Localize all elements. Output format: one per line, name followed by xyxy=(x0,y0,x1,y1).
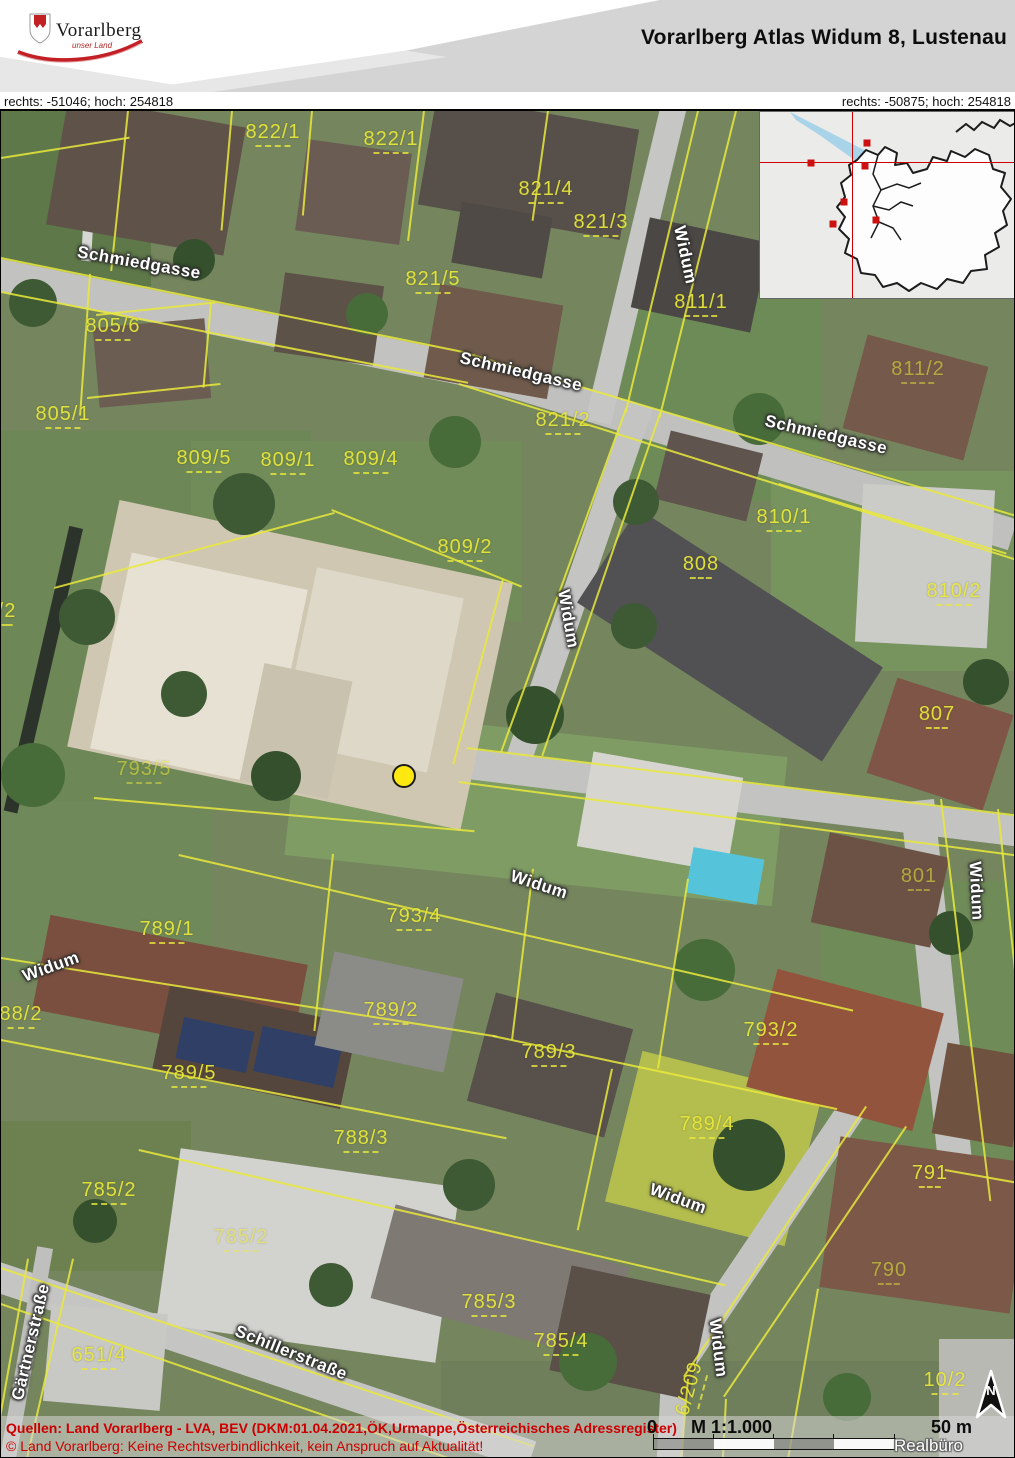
logo-tagline: unser Land xyxy=(72,41,112,50)
town-location-square xyxy=(830,221,837,228)
north-arrow-icon: N xyxy=(971,1369,1011,1421)
source-line: Quellen: Land Vorarlberg - LVA, BEV (DKM… xyxy=(6,1420,677,1436)
disclaimer-line: © Land Vorarlberg: Keine Rechtsverbindli… xyxy=(6,1438,483,1454)
parcel-number-label: 805/6 xyxy=(85,315,140,341)
parcel-number-label: 821/2 xyxy=(535,409,590,435)
parcel-number-label: 822/1 xyxy=(363,128,418,154)
vorarlberg-logo: Vorarlberg unser Land xyxy=(10,8,200,78)
parcel-number-label: 808 xyxy=(683,553,719,579)
town-location-square xyxy=(808,160,815,167)
vorarlberg-shield-icon xyxy=(30,14,50,43)
parcel-number-label: 785/3 xyxy=(461,1291,516,1317)
lake-constance-shape xyxy=(790,112,872,161)
parcel-number-label: 805/1 xyxy=(35,403,90,429)
parcel-number-label: 651/4 xyxy=(71,1344,126,1370)
tree xyxy=(429,416,481,468)
address-marker xyxy=(392,764,416,788)
tree xyxy=(963,659,1009,705)
parcel-number-label: 809/1 xyxy=(260,449,315,475)
tree xyxy=(73,1199,117,1243)
building xyxy=(295,139,412,245)
parcel-number-label: 793/2 xyxy=(743,1019,798,1045)
overview-inset-map[interactable] xyxy=(759,111,1015,299)
parcel-number-label: 811/1 xyxy=(674,291,728,317)
page-title: Vorarlberg Atlas Widum 8, Lustenau xyxy=(641,26,1007,50)
parcel-number-label: 789/3 xyxy=(521,1041,576,1067)
parcel-number-label: 793/5 xyxy=(116,758,171,784)
tree xyxy=(309,1263,353,1307)
scale-bar xyxy=(653,1438,896,1450)
building xyxy=(855,484,995,649)
parcel-number-label: 789/2 xyxy=(363,999,418,1025)
street-name-label: Widum xyxy=(964,861,987,921)
scale-tick xyxy=(713,1434,714,1439)
scale-tick xyxy=(653,1434,654,1439)
parcel-number-label: 821/3 xyxy=(573,211,628,237)
parcel-number-label: 88/2 xyxy=(0,1003,42,1029)
parcel-number-label: 785/2 xyxy=(81,1179,136,1205)
parcel-number-label: 807 xyxy=(919,703,955,729)
scale-tick xyxy=(833,1434,834,1439)
parcel-number-label: 809/4 xyxy=(343,448,398,474)
parcel-number-label: 793/4 xyxy=(386,905,441,931)
vorarlberg-outline-graphic xyxy=(760,112,1015,299)
parcel-number-label: 785/4 xyxy=(533,1330,588,1356)
tree xyxy=(611,603,657,649)
tree xyxy=(443,1159,495,1211)
town-location-square xyxy=(864,140,871,147)
parcel-number-label: 809/2 xyxy=(437,536,492,562)
parcel-number-label: 789/1 xyxy=(139,918,194,944)
tree xyxy=(59,589,115,645)
parcel-number-label: 791 xyxy=(912,1162,948,1188)
parcel-number-label: 789/4 xyxy=(679,1113,734,1139)
parcel-number-label: 788/3 xyxy=(333,1127,388,1153)
parcel-number-label: 821/4 xyxy=(518,178,573,204)
header: Vorarlberg unser Land Vorarlberg Atlas W… xyxy=(0,0,1015,92)
credit-label: Realbüro Hagen xyxy=(894,1436,1014,1458)
scale-tick xyxy=(773,1434,774,1439)
map-viewport[interactable]: 822/1822/1821/4821/3821/5811/1805/6805/1… xyxy=(0,110,1015,1458)
parcel-number-label: 790 xyxy=(871,1259,907,1285)
parcel-number-label: 822/1 xyxy=(245,121,300,147)
tree xyxy=(213,473,275,535)
svg-text:N: N xyxy=(986,1383,995,1398)
scale-ratio-label: M 1:1.000 xyxy=(691,1417,772,1438)
parcel-number-label: 810/2 xyxy=(926,580,981,606)
scale-bar-segment xyxy=(714,1439,774,1449)
logo-brand-text: Vorarlberg xyxy=(56,20,142,42)
town-location-square xyxy=(862,163,869,170)
coords-left: rechts: -51046; hoch: 254818 xyxy=(4,94,173,109)
crosshair-horizontal xyxy=(760,162,1015,163)
scale-zero-label: 0 xyxy=(647,1417,657,1438)
parcel-number-label: 801 xyxy=(901,865,937,891)
town-location-square xyxy=(841,199,848,206)
town-location-square xyxy=(873,217,880,224)
border-continuation xyxy=(956,120,1015,132)
coordinate-bar: rechts: -51046; hoch: 254818 rechts: -50… xyxy=(0,92,1015,110)
tree xyxy=(251,751,301,801)
tree xyxy=(161,671,207,717)
scale-bar-segment xyxy=(654,1439,714,1449)
tree xyxy=(9,279,57,327)
scale-bar-segment xyxy=(834,1439,894,1449)
parcel-number-label: 785/2 xyxy=(213,1226,268,1252)
parcel-number-label: 811/2 xyxy=(891,358,945,384)
parcel-number-label: 10/2 xyxy=(924,1369,967,1395)
scale-distance-label: 50 m xyxy=(931,1417,972,1438)
scale-bar-segment xyxy=(774,1439,834,1449)
tree xyxy=(823,1373,871,1421)
parcel-number-label: 809/5 xyxy=(176,447,231,473)
parcel-number-label: 810/1 xyxy=(756,506,811,532)
parcel-number-label: /2 xyxy=(0,600,16,626)
vorarlberg-atlas-page: Vorarlberg unser Land Vorarlberg Atlas W… xyxy=(0,0,1015,1458)
crosshair-vertical xyxy=(852,112,853,298)
tree xyxy=(1,743,65,807)
parcel-number-label: 789/5 xyxy=(161,1062,216,1088)
coords-right: rechts: -50875; hoch: 254818 xyxy=(842,94,1011,109)
parcel-number-label: 821/5 xyxy=(405,268,460,294)
